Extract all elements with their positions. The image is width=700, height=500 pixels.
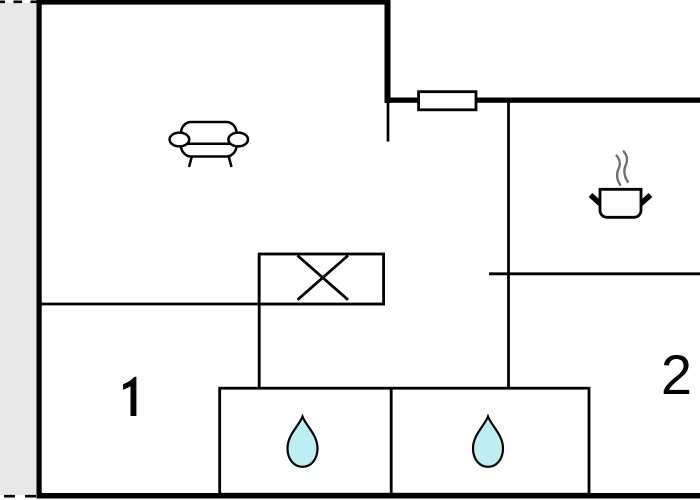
svg-text:2: 2 — [661, 343, 692, 406]
